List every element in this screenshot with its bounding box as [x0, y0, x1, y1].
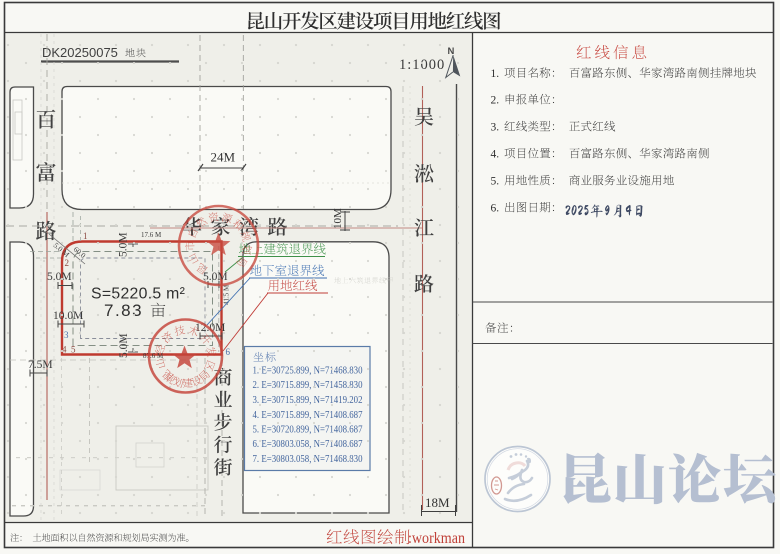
svg-text::workman: :workman	[408, 530, 465, 547]
svg-text:1.: 1.	[491, 68, 500, 80]
svg-text:2.: 2.	[491, 95, 500, 107]
svg-text:5.: 5.	[491, 176, 500, 188]
svg-text:3.: 3.	[491, 122, 500, 134]
svg-text:6.: 6.	[491, 203, 500, 215]
svg-text:4.: 4.	[491, 149, 500, 161]
